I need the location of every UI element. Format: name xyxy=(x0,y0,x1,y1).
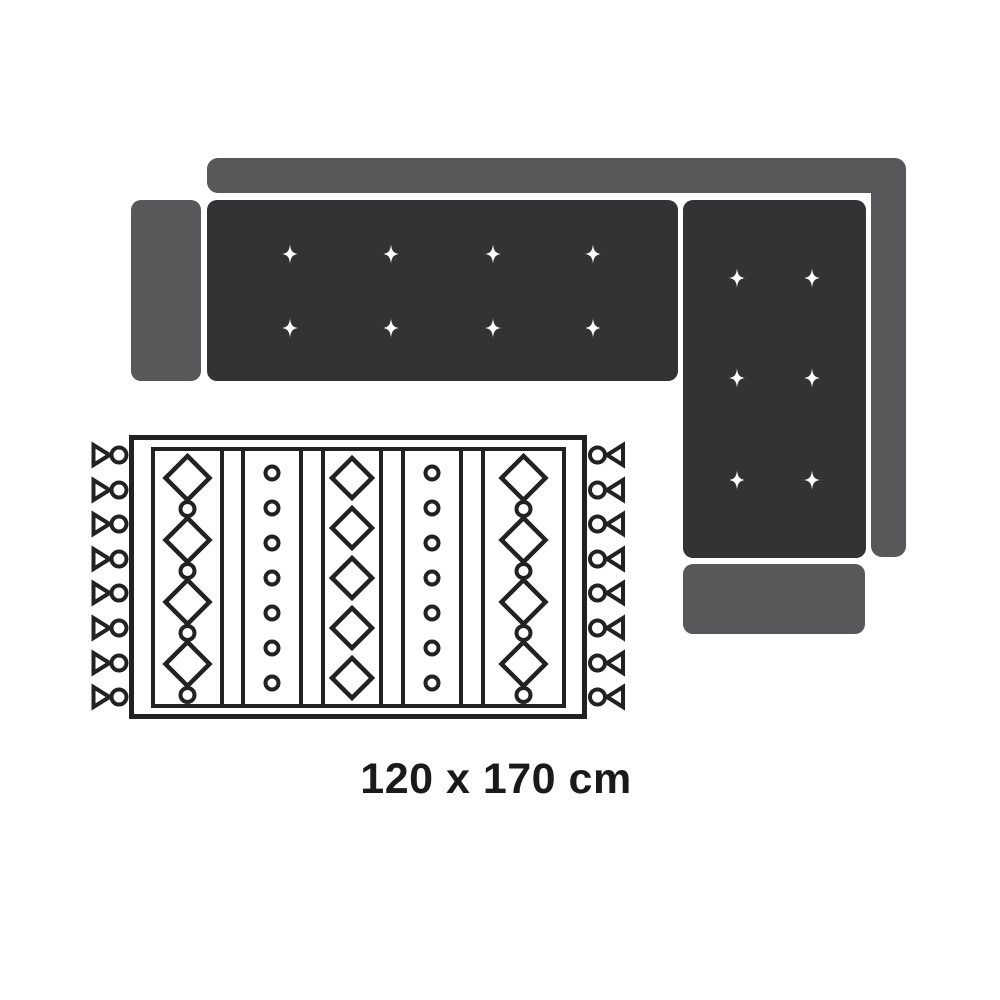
tassel-circle xyxy=(590,656,605,671)
rug-pattern-diamond xyxy=(332,508,372,548)
rug-pattern-circle xyxy=(426,677,439,690)
tassel-triangle xyxy=(94,583,110,603)
tassel-triangle xyxy=(607,549,623,569)
rug-pattern-circle xyxy=(266,677,279,690)
rug-pattern-circle xyxy=(181,502,195,516)
rug-pattern-diamond xyxy=(332,558,372,598)
rug-fringe-tassel xyxy=(590,687,623,707)
tassel-triangle xyxy=(94,549,110,569)
rug-pattern-columns xyxy=(166,456,546,702)
tassel-circle xyxy=(112,656,127,671)
rug-outer-border xyxy=(132,438,585,717)
rug-pattern-diamond xyxy=(502,580,546,624)
rug-fringe-tassel xyxy=(590,549,623,569)
tassel-circle xyxy=(590,690,605,705)
rug-fringe-tassel xyxy=(590,445,623,465)
tassel-triangle xyxy=(94,618,110,638)
rug-pattern-circle xyxy=(266,502,279,515)
tassel-circle xyxy=(590,517,605,532)
rug-pattern-diamond xyxy=(166,456,210,500)
rug-pattern-circle xyxy=(181,626,195,640)
rug-pattern-circle xyxy=(426,467,439,480)
diagram-canvas: 120 x 170 cm xyxy=(0,0,1000,1000)
tassel-circle xyxy=(590,483,605,498)
rug-fringe-tassel xyxy=(94,583,127,603)
tassel-triangle xyxy=(94,480,110,500)
rug-divider-lines xyxy=(222,449,483,706)
tassel-circle xyxy=(590,621,605,636)
rug-pattern-diamond xyxy=(332,608,372,648)
rug-pattern-diamond xyxy=(332,458,372,498)
rug-fringe-tassel xyxy=(94,653,127,673)
sofa-right-backrest xyxy=(871,158,906,557)
tassel-circle xyxy=(112,517,127,532)
tassel-circle xyxy=(112,448,127,463)
rug-pattern-circle xyxy=(181,688,195,702)
rug-pattern-circle xyxy=(426,642,439,655)
rug-fringe-tassel xyxy=(94,687,127,707)
tassel-triangle xyxy=(94,653,110,673)
rug-pattern-diamond xyxy=(166,642,210,686)
tassel-triangle xyxy=(607,514,623,534)
tassel-triangle xyxy=(607,653,623,673)
rug-pattern-frame xyxy=(153,449,564,706)
rug-pattern-circle xyxy=(266,467,279,480)
sofa-bottom-armrest xyxy=(683,564,865,634)
rug-pattern-circle xyxy=(517,626,531,640)
rug-pattern-circle xyxy=(426,572,439,585)
tassel-circle xyxy=(590,448,605,463)
rug-pattern-diamond xyxy=(166,580,210,624)
rug-pattern-diamond xyxy=(332,658,372,698)
tassel-circle xyxy=(112,621,127,636)
rug-pattern-diamond xyxy=(502,642,546,686)
rug-fringe-tassel xyxy=(94,445,127,465)
tassel-circle xyxy=(112,586,127,601)
rug-pattern-circle xyxy=(426,607,439,620)
rug-pattern-circle xyxy=(266,607,279,620)
rug-illustration xyxy=(94,438,624,717)
sofa-chaise-seat xyxy=(683,200,866,558)
tassel-triangle xyxy=(607,583,623,603)
sofa-main-seat xyxy=(207,200,678,381)
rug-fringe-tassel xyxy=(94,480,127,500)
rug-fringe-tassel xyxy=(590,480,623,500)
rug-pattern-diamond xyxy=(502,518,546,562)
tassel-triangle xyxy=(607,687,623,707)
tassel-circle xyxy=(590,552,605,567)
rug-pattern-circle xyxy=(266,572,279,585)
rug-pattern-circle xyxy=(181,564,195,578)
tassel-triangle xyxy=(607,480,623,500)
rug-pattern-diamond xyxy=(166,518,210,562)
tassel-circle xyxy=(112,690,127,705)
rug-pattern-circle xyxy=(517,502,531,516)
rug-pattern-circle xyxy=(517,564,531,578)
rug-fringe-tassel xyxy=(590,583,623,603)
rug-fringe-tassels xyxy=(94,445,624,707)
sofa-left-armrest xyxy=(131,200,201,381)
tassel-circle xyxy=(112,552,127,567)
tassel-triangle xyxy=(94,687,110,707)
tassel-circle xyxy=(590,586,605,601)
rug-pattern-circle xyxy=(517,688,531,702)
rug-pattern-circle xyxy=(426,502,439,515)
tassel-triangle xyxy=(607,618,623,638)
size-label: 120 x 170 cm xyxy=(360,755,631,804)
rug-fringe-tassel xyxy=(94,549,127,569)
rug-fringe-tassel xyxy=(94,514,127,534)
sofa-top-backrest xyxy=(207,158,905,193)
rug-pattern-circle xyxy=(426,537,439,550)
rug-pattern-diamond xyxy=(502,456,546,500)
tassel-triangle xyxy=(94,445,110,465)
rug-fringe-tassel xyxy=(94,618,127,638)
tassel-circle xyxy=(112,483,127,498)
rug-fringe-tassel xyxy=(590,514,623,534)
rug-pattern-circle xyxy=(266,537,279,550)
rug-fringe-tassel xyxy=(590,618,623,638)
rug-pattern-circle xyxy=(266,642,279,655)
tassel-triangle xyxy=(607,445,623,465)
rug-fringe-tassel xyxy=(590,653,623,673)
tassel-triangle xyxy=(94,514,110,534)
